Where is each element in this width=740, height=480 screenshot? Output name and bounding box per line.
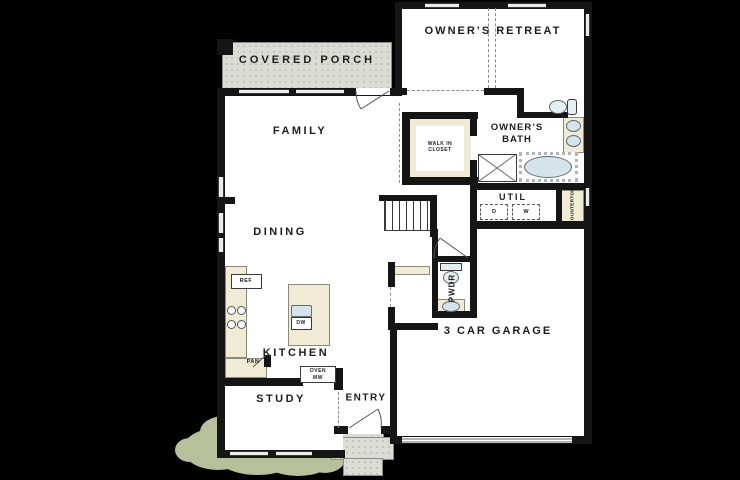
label-washer: W bbox=[523, 209, 528, 215]
label-ref: REF bbox=[240, 278, 253, 284]
wall bbox=[381, 426, 397, 434]
ceiling-line bbox=[488, 8, 489, 88]
ceiling-line bbox=[495, 8, 496, 88]
window bbox=[425, 3, 459, 8]
label-dryer: D bbox=[492, 209, 496, 215]
room-owners-retreat bbox=[395, 2, 591, 94]
porch-post bbox=[217, 39, 233, 55]
door-opening bbox=[348, 426, 381, 434]
label-family: FAMILY bbox=[273, 125, 327, 137]
sink-icon bbox=[442, 301, 460, 312]
toilet-tank-icon bbox=[440, 263, 462, 271]
garage-door bbox=[402, 438, 572, 440]
wall bbox=[432, 256, 477, 262]
cooktop-burner-icon bbox=[237, 306, 246, 315]
label-dining: DINING bbox=[253, 226, 307, 238]
island-sink-icon bbox=[291, 305, 312, 317]
label-countertop: COUNTERTOP bbox=[570, 188, 575, 223]
wall bbox=[556, 185, 562, 225]
wall bbox=[432, 229, 438, 317]
label-owners-bath: OWNER’S BATH bbox=[481, 122, 553, 146]
sink-icon bbox=[566, 120, 581, 132]
wall bbox=[395, 2, 402, 94]
window bbox=[585, 14, 590, 36]
wall bbox=[395, 88, 407, 95]
label-pan: PAN bbox=[247, 359, 260, 365]
wall bbox=[217, 378, 303, 386]
cased-opening bbox=[338, 392, 339, 428]
window bbox=[218, 177, 224, 197]
label-oven: OVEN bbox=[310, 368, 326, 374]
tub-icon bbox=[524, 156, 572, 178]
label-study: STUDY bbox=[256, 393, 306, 405]
door-opening bbox=[356, 88, 390, 95]
wall bbox=[388, 262, 395, 287]
wall bbox=[402, 112, 478, 119]
shower-icon bbox=[478, 154, 517, 182]
window bbox=[218, 238, 224, 252]
label-entry: ENTRY bbox=[345, 393, 386, 404]
front-stoop bbox=[343, 458, 383, 476]
floor-plan: COVERED PORCH OWNER’S RETREAT FAMILY DIN… bbox=[0, 0, 740, 480]
cooktop-burner-icon bbox=[227, 320, 236, 329]
cooktop-burner-icon bbox=[227, 306, 236, 315]
covered-porch-slab bbox=[222, 42, 392, 91]
label-util: UTIL bbox=[499, 192, 527, 202]
wall bbox=[379, 195, 437, 201]
toilet-bowl-icon bbox=[549, 100, 567, 114]
window bbox=[508, 3, 546, 8]
window bbox=[296, 89, 344, 94]
label-dw: DW bbox=[296, 320, 305, 326]
wall bbox=[390, 323, 397, 443]
wall bbox=[217, 88, 225, 458]
cased-opening bbox=[399, 103, 400, 183]
wall bbox=[470, 183, 477, 229]
window bbox=[230, 451, 268, 456]
wall bbox=[470, 112, 477, 136]
mud-bench bbox=[393, 266, 430, 275]
garage-door bbox=[402, 441, 572, 443]
wall bbox=[402, 112, 410, 184]
label-garage: 3 CAR GARAGE bbox=[444, 325, 552, 337]
wall bbox=[402, 177, 478, 185]
sink-icon bbox=[566, 135, 581, 147]
label-owners-retreat: OWNER’S RETREAT bbox=[425, 25, 562, 37]
cooktop-burner-icon bbox=[237, 320, 246, 329]
wall bbox=[222, 197, 235, 204]
window bbox=[218, 213, 224, 233]
wall bbox=[470, 160, 477, 185]
toilet-tank-icon bbox=[567, 99, 577, 115]
window bbox=[276, 451, 312, 456]
label-mw: MW bbox=[313, 375, 323, 381]
label-walk-in-closet: WALK IN CLOSET bbox=[422, 141, 458, 154]
window bbox=[585, 188, 590, 206]
wall bbox=[388, 323, 438, 330]
cased-opening bbox=[407, 90, 484, 91]
wall bbox=[432, 311, 477, 318]
wall bbox=[470, 229, 477, 317]
staircase bbox=[384, 200, 432, 231]
label-covered-porch: COVERED PORCH bbox=[239, 54, 375, 66]
cased-opening bbox=[390, 287, 391, 307]
wall bbox=[334, 426, 348, 434]
label-kitchen: KITCHEN bbox=[263, 347, 329, 359]
label-pwdr: PWDR bbox=[448, 274, 457, 302]
window bbox=[239, 89, 289, 94]
wall bbox=[517, 90, 524, 118]
